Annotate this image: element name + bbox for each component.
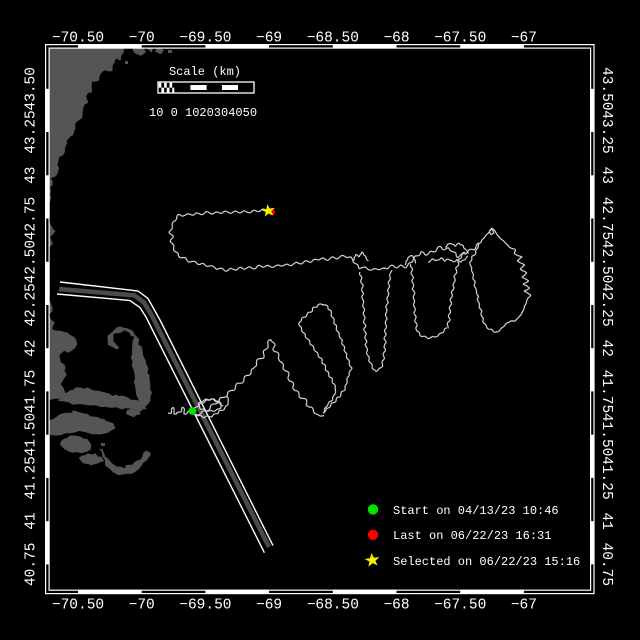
svg-text:−69.50: −69.50 — [179, 31, 231, 47]
svg-text:−68.50: −68.50 — [307, 31, 359, 47]
svg-text:−70.50: −70.50 — [52, 598, 104, 614]
svg-text:41.25: 41.25 — [24, 456, 40, 500]
svg-text:42.50: 42.50 — [598, 240, 614, 284]
svg-text:41.75: 41.75 — [24, 370, 40, 414]
svg-text:40.75: 40.75 — [598, 543, 614, 587]
svg-text:−67.50: −67.50 — [434, 31, 486, 47]
svg-text:−68: −68 — [383, 598, 409, 614]
svg-text:41.50: 41.50 — [24, 413, 40, 457]
svg-text:Selected on 06/22/23 15:16: Selected on 06/22/23 15:16 — [393, 555, 580, 569]
svg-text:−67.50: −67.50 — [434, 598, 486, 614]
svg-text:41: 41 — [598, 512, 614, 529]
svg-text:42.25: 42.25 — [598, 283, 614, 327]
svg-text:−69.50: −69.50 — [179, 598, 231, 614]
svg-text:41.50: 41.50 — [598, 413, 614, 457]
svg-text:−70.50: −70.50 — [52, 31, 104, 47]
svg-text:40.75: 40.75 — [24, 543, 40, 587]
svg-text:43.25: 43.25 — [598, 110, 614, 154]
svg-text:10 0 1020304050: 10 0 1020304050 — [149, 106, 257, 120]
svg-text:42.25: 42.25 — [24, 283, 40, 327]
svg-text:42: 42 — [24, 339, 40, 356]
svg-text:Last on 06/22/23 16:31: Last on 06/22/23 16:31 — [393, 529, 551, 543]
svg-text:42.50: 42.50 — [24, 240, 40, 284]
svg-text:42.75: 42.75 — [24, 197, 40, 241]
svg-text:42: 42 — [598, 339, 614, 356]
svg-text:−69: −69 — [256, 31, 282, 47]
svg-text:−69: −69 — [256, 598, 282, 614]
svg-text:43: 43 — [24, 166, 40, 183]
svg-text:41: 41 — [24, 512, 40, 529]
svg-text:−68: −68 — [383, 31, 409, 47]
svg-text:−70: −70 — [129, 31, 155, 47]
svg-text:Start on 04/13/23 10:46: Start on 04/13/23 10:46 — [393, 504, 559, 518]
svg-text:−68.50: −68.50 — [307, 598, 359, 614]
svg-text:−67: −67 — [511, 598, 537, 614]
svg-text:43.25: 43.25 — [24, 110, 40, 154]
svg-text:43.50: 43.50 — [598, 67, 614, 111]
svg-text:41.75: 41.75 — [598, 370, 614, 414]
svg-text:42.75: 42.75 — [598, 197, 614, 241]
svg-text:−70: −70 — [129, 598, 155, 614]
svg-text:43: 43 — [598, 166, 614, 183]
svg-text:43.50: 43.50 — [24, 67, 40, 111]
svg-text:41.25: 41.25 — [598, 456, 614, 500]
svg-text:Scale (km): Scale (km) — [169, 65, 241, 79]
svg-text:−67: −67 — [511, 31, 537, 47]
